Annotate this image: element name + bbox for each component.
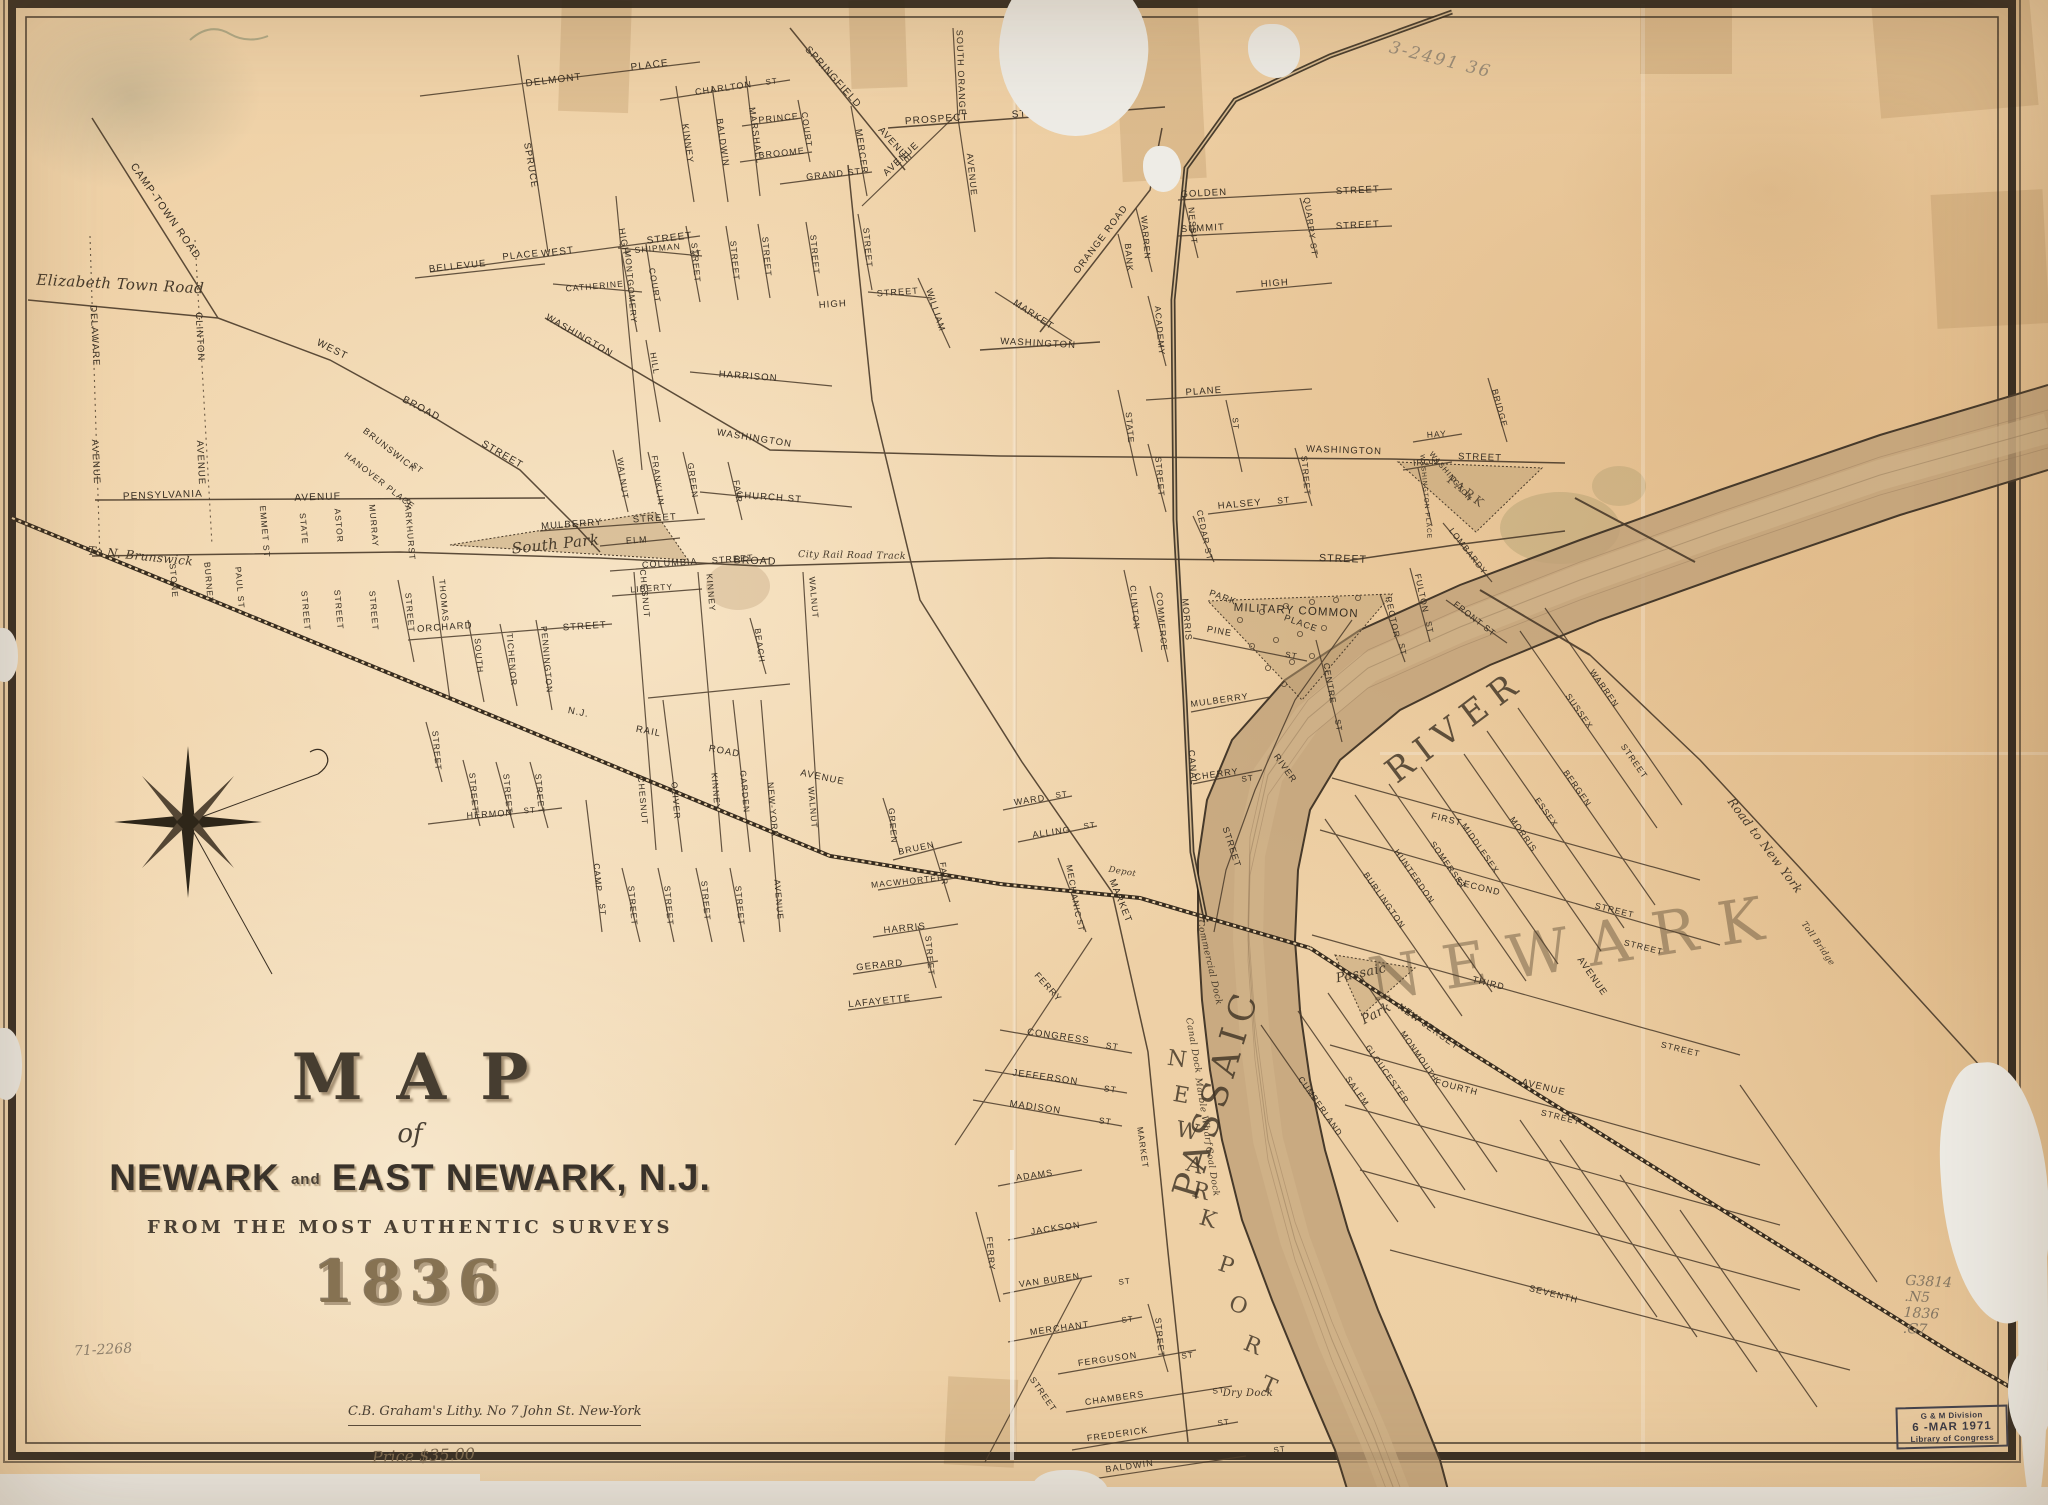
map-label: DELAWARE (87, 305, 101, 367)
map-label: ESSEX (1533, 796, 1561, 829)
map-label: HIGH (617, 227, 632, 255)
map-title-main: NEWARK and EAST NEWARK, N.J. (85, 1157, 735, 1199)
map-label: P (1215, 1252, 1237, 1280)
map-label: CHESNUT (638, 569, 652, 618)
map-label: CHARLTON (694, 79, 752, 97)
map-label: MARKET (1107, 878, 1135, 925)
map-label: ELM (626, 534, 648, 545)
map-label: PINE (1206, 624, 1233, 638)
map-label: PLACE (502, 248, 540, 263)
map-label: GERARD (856, 958, 904, 974)
map-label: STREET (1028, 1375, 1059, 1414)
map-label: BALDWIN (1105, 1458, 1155, 1475)
map-label: GREEN (686, 462, 701, 499)
map-label: ASTOR (332, 508, 345, 543)
map-subtitle: FROM THE MOST AUTHENTIC SURVEYS (85, 1217, 735, 1238)
map-label: STREET (299, 590, 312, 631)
map-label: AVENUE (799, 768, 845, 788)
map-label: HARRISON (718, 369, 778, 384)
map-label: STREET (1153, 456, 1166, 497)
map-label: ST (1277, 494, 1291, 505)
map-label: Toll Bridge (1799, 920, 1837, 968)
map-label: STREET (1458, 451, 1502, 464)
map-label: SOUTH ORANGE (954, 30, 967, 117)
fold-crack (1010, 1150, 1014, 1460)
map-label: HIGH (818, 298, 847, 311)
map-label: ADAMS (1015, 1167, 1054, 1182)
map-label: BROOME (758, 146, 805, 161)
map-label: Depot (1107, 865, 1137, 880)
map-label: GLOUCESTER (1363, 1043, 1411, 1106)
map-label: SUSSEX (1564, 692, 1596, 731)
map-label: EMMET ST (258, 505, 273, 558)
map-label: E (1171, 1082, 1191, 1109)
map-label: SPRUCE (521, 142, 540, 189)
paper-tear (2018, 1140, 2048, 1505)
map-label: STREET (367, 590, 380, 631)
map-label: BERGEN (1561, 768, 1594, 809)
map-label: PENNINGTON (539, 626, 555, 694)
map-label: WASHINGTON (544, 312, 615, 359)
map-title-of: of (85, 1119, 735, 1149)
map-label: STREET (430, 730, 443, 771)
map-label: HALSEY (1217, 497, 1262, 512)
map-label: STREET (861, 227, 874, 268)
map-label: WALNUT (615, 457, 631, 500)
map-label: ROAD (708, 743, 741, 760)
map-label: JEFFERSON (1012, 1067, 1079, 1087)
map-label: ST (1075, 919, 1086, 933)
map-label: CATHERINE (565, 278, 624, 293)
map-label: STREET (480, 439, 525, 472)
map-label: STREET (1299, 455, 1312, 496)
paper-tear (1143, 146, 1181, 192)
map-label: WASHINGTON (1306, 444, 1382, 458)
map-label: FERRY (985, 1236, 998, 1271)
map-label: STREET (760, 236, 773, 277)
map-label: GRAND ST (806, 166, 862, 182)
library-of-congress-stamp: G & M Division 6 -MAR 1971 Library of Co… (1895, 1405, 2008, 1450)
map-label: ST (1105, 1040, 1119, 1052)
map-label: Road to New York (1724, 794, 1806, 896)
map-label: ST (523, 806, 536, 816)
map-label: GREEN (886, 808, 899, 844)
map-label: ORCHARD (417, 620, 473, 635)
map-label: WALNUT (807, 576, 821, 619)
map-label: STREET (403, 592, 416, 633)
map-label: COURT (800, 111, 815, 148)
map-label: SALEM (1344, 1074, 1372, 1108)
map-label: SEVENTH (1528, 1283, 1579, 1305)
lithographer-imprint: C.B. Graham's Lithy. No 7 John St. New-Y… (348, 1404, 641, 1426)
map-scan: CAMP-TOWN ROADElizabeth Town RoadDELAWAR… (0, 0, 2048, 1505)
map-label: City Rail Road Track (798, 549, 906, 562)
map-label: MIDDLESEX (1459, 821, 1501, 875)
map-label: AVENUE (772, 879, 786, 921)
map-label: MURRAY (367, 504, 381, 548)
map-label: STREET (923, 935, 936, 976)
map-label: BALDWIN (715, 118, 732, 168)
map-label: R (1240, 1331, 1266, 1361)
map-label: SOUTH (472, 638, 485, 674)
pencil-squiggle (190, 29, 268, 40)
map-label: STREET (662, 885, 675, 926)
map-label: PAUL ST (233, 566, 247, 609)
map-label: CLINTON (193, 312, 207, 362)
map-label: STREET (1153, 1317, 1166, 1358)
map-label: STREET (1319, 552, 1367, 566)
map-label: AVENUE (89, 439, 102, 484)
map-label: MARKET (1135, 1126, 1151, 1169)
title-block: MAP of NEWARK and EAST NEWARK, N.J. FROM… (85, 1040, 735, 1316)
map-label: WARREN (1588, 667, 1621, 709)
map-label: MACWHORTER (871, 872, 945, 890)
map-label: GARDEN (738, 770, 752, 814)
stamp-agency: Library of Congress (1900, 1433, 2004, 1445)
map-label: MADISON (1009, 1098, 1062, 1116)
map-label: HIGH (1260, 277, 1289, 290)
sheet-bottom-edge (0, 1474, 480, 1505)
compass-rose (114, 746, 328, 974)
map-label: STATE (298, 513, 311, 545)
map-label: THOMAS (437, 579, 451, 623)
map-label: STREET (733, 885, 746, 926)
map-label: WEST (315, 337, 350, 362)
map-label: WASHINGTON (716, 427, 793, 450)
map-label: COURT (647, 267, 663, 304)
map-label: CHESNUT (636, 776, 650, 825)
map-label: DELMONT (525, 72, 583, 90)
map-label: STATE (1124, 412, 1137, 444)
map-label: ST (1098, 1115, 1112, 1127)
map-label: OLIVER (669, 781, 682, 820)
map-label: SUMMIT (1181, 222, 1226, 235)
map-label: MARKET (1011, 298, 1056, 332)
price-note: Price $35.00 (372, 1444, 476, 1467)
map-label: ST (597, 903, 607, 916)
map-label: JACKSON (1030, 1220, 1081, 1237)
map-label: CEDAR ST (1195, 509, 1216, 562)
map-label: PENSYLVANIA (123, 489, 203, 503)
map-label: BEACH (753, 628, 768, 664)
map-label: STREET (728, 240, 741, 281)
map-label: COLUMBIA (642, 556, 698, 570)
map-label: ST (1121, 1314, 1135, 1325)
map-title-word: MAP (85, 1040, 735, 1115)
map-label: N.J. (567, 705, 590, 720)
map-label: ST (1181, 1350, 1195, 1361)
map-label: AVENUE (294, 491, 341, 504)
map-label: QUARRY ST (1302, 197, 1320, 257)
map-label: LAFAYETTE (848, 993, 912, 1011)
map-label: FRANKLIN (649, 455, 666, 507)
map-label: STREET (1336, 219, 1381, 232)
map-label: ST (1055, 789, 1069, 800)
map-label: KINNEY (704, 573, 717, 612)
map-label: PLACE (630, 58, 669, 74)
map-label: Dry Dock (1222, 1388, 1274, 1399)
map-label: AVENUE (194, 440, 207, 485)
map-label: ST (1230, 417, 1240, 430)
map-year: 1836 (85, 1248, 735, 1316)
map-label: CAMP-TOWN ROAD (128, 161, 203, 262)
map-label: BROAD (400, 394, 441, 423)
map-label: ST (1273, 1444, 1287, 1455)
map-label: STREET (632, 511, 677, 525)
map-label: WALNUT (806, 786, 820, 829)
title-east-newark: EAST NEWARK, N.J. (332, 1157, 711, 1198)
map-label: FAIR (731, 479, 744, 503)
map-label: STREET (332, 589, 345, 630)
map-label: ST (1241, 773, 1255, 784)
map-label: Canal Dock (1183, 1017, 1203, 1074)
map-label: SPRINGFIELD (802, 44, 863, 110)
map-label: BRIDGE (1490, 388, 1510, 428)
map-label: N (1166, 1046, 1189, 1073)
title-and: and (291, 1171, 321, 1188)
sheet-bottom-edge (480, 1481, 1040, 1505)
map-label: WARREN (1139, 215, 1153, 260)
map-label: COMMERCE (1154, 592, 1169, 652)
map-label: STREET (1619, 742, 1650, 781)
map-label: HILL (648, 352, 662, 376)
map-label: PLANE (1185, 385, 1222, 399)
map-label: HUNTERDON (1392, 847, 1437, 905)
map-label: PRINCE (758, 111, 799, 125)
call-number-line: .G7 (1902, 1321, 1950, 1339)
map-label: ST (689, 248, 702, 258)
map-label: O (1225, 1291, 1251, 1321)
map-label: WEST (541, 245, 575, 260)
map-label: STREET (467, 772, 480, 813)
map-label: LOMBARDY (1447, 526, 1490, 577)
map-label: CLINTON (1128, 585, 1142, 631)
map-label: ST (1103, 1083, 1117, 1095)
map-label: STREET (699, 880, 712, 921)
map-label: WARD (1013, 793, 1046, 807)
map-label: LIBERTY (630, 582, 674, 595)
map-label: Elizabeth Town Road (35, 271, 205, 298)
map-label: STREET (626, 885, 639, 926)
map-label: CONGRESS (1026, 1027, 1090, 1047)
map-label: ORANGE ROAD (1072, 203, 1131, 276)
map-label: RAIL (635, 724, 662, 740)
map-label: CAMP (592, 863, 604, 893)
map-label: STREET (562, 619, 607, 633)
map-label: IRON (1413, 456, 1439, 468)
map-label: FREDERICK (1086, 1425, 1149, 1444)
map-label: ST (765, 76, 779, 87)
map-label: HAY (1426, 428, 1447, 439)
map-label: KINNEY (680, 123, 695, 164)
map-label: BURLINGTON (1361, 870, 1407, 930)
map-label: CHURCH ST (736, 490, 802, 506)
sheet-bottom-edge (1040, 1487, 2048, 1505)
map-label: AVENUE (1520, 1077, 1566, 1099)
map-label: MONTGOMERY (623, 250, 639, 324)
title-newark: NEWARK (109, 1157, 279, 1198)
map-label: ACADEMY (1153, 306, 1167, 356)
negative-number: 71-2268 (74, 1340, 133, 1359)
map-label: STREET (808, 234, 821, 275)
map-label: BANK (1123, 243, 1135, 273)
map-label: ST (1217, 1417, 1231, 1428)
call-number: G3814 .N5 1836 .G7 (1902, 1273, 1952, 1339)
map-label: STREET (1336, 184, 1381, 197)
map-label: VAN BUREN (1018, 1271, 1081, 1289)
map-label: BELLEVUE (428, 258, 487, 275)
map-label: ALLING (1032, 824, 1072, 839)
map-label: ST (1118, 1276, 1132, 1287)
map-label: ST (1083, 820, 1097, 831)
map-label: K (1196, 1205, 1219, 1234)
map-label: STONE (167, 563, 180, 598)
map-label: WASHINGTON (1000, 336, 1076, 351)
map-label: WILLIAM (924, 287, 947, 333)
